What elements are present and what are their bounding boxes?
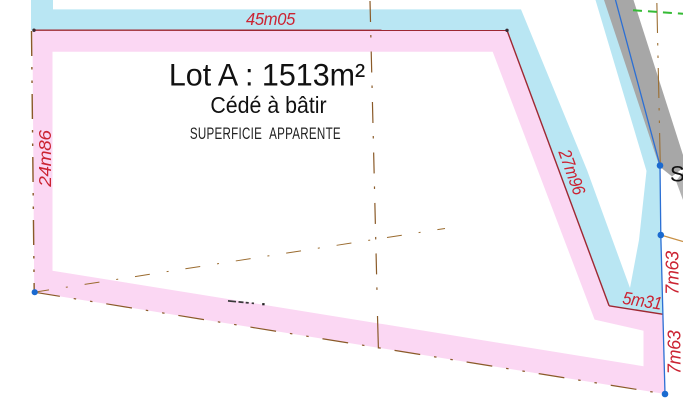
svg-text:7m63: 7m63 [662, 251, 682, 295]
svg-text:S: S [670, 162, 683, 187]
svg-text:24m86: 24m86 [35, 129, 55, 188]
svg-text:45m05: 45m05 [246, 9, 296, 30]
svg-text:Lot A : 1513m²: Lot A : 1513m² [169, 57, 365, 93]
svg-text:7m63: 7m63 [664, 330, 683, 374]
svg-text:Cédé à bâtir: Cédé à bâtir [210, 92, 327, 118]
svg-text:SUPERFICIE APPARENTE: SUPERFICIE APPARENTE [190, 125, 341, 144]
